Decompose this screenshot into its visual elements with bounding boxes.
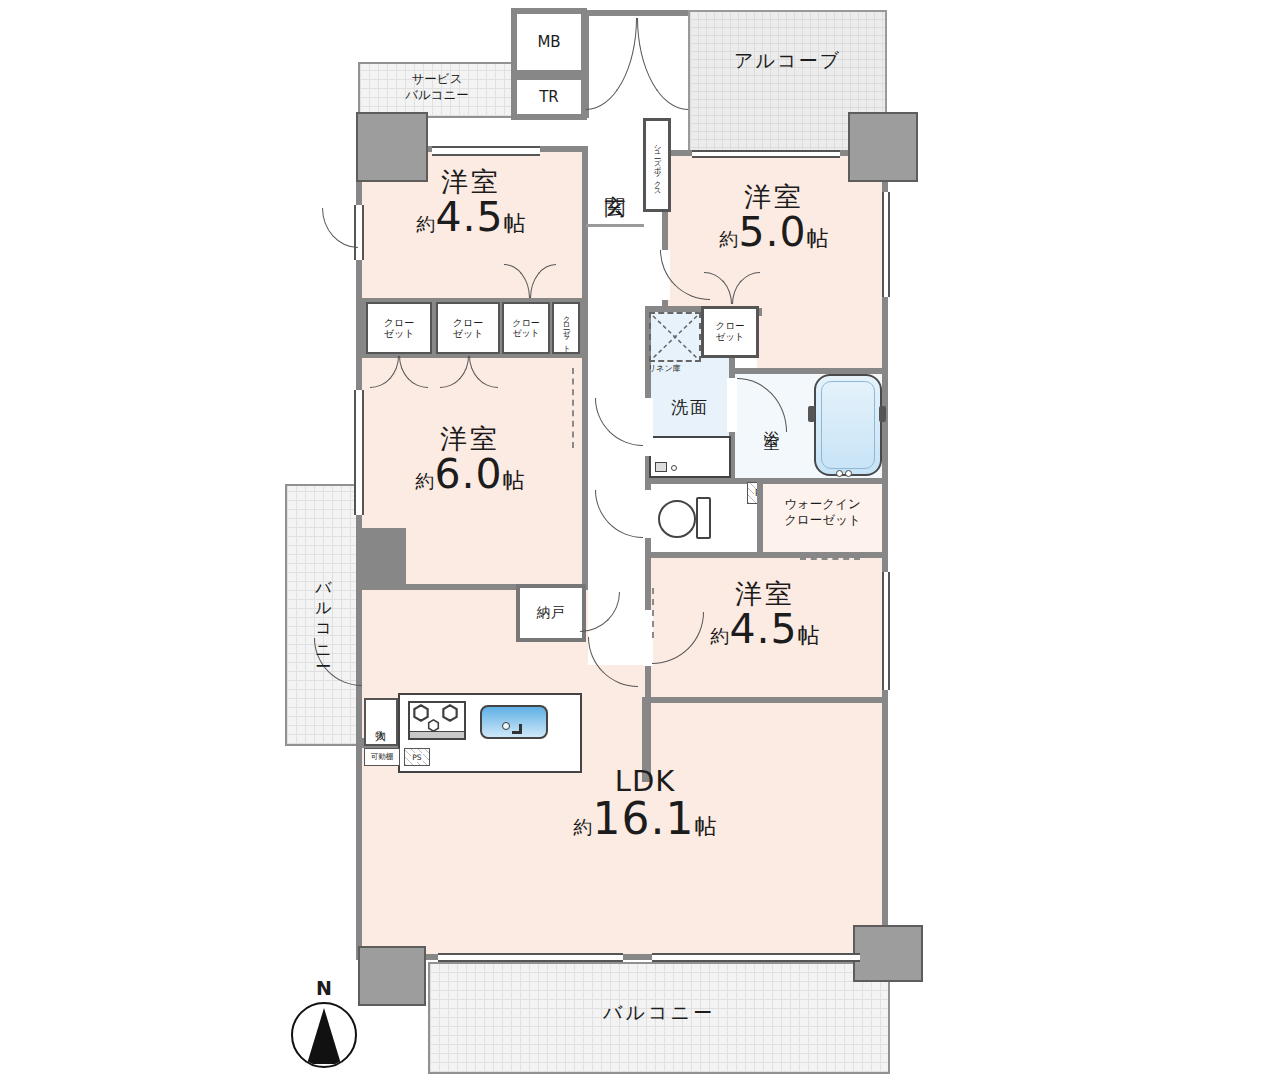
closet-label: クロー (384, 317, 414, 328)
mb-label: MB (537, 33, 560, 51)
bathtub-inner (821, 381, 875, 469)
closet-1: クローゼット (366, 302, 432, 354)
left-balcony-label: バルコニー (290, 510, 356, 720)
tr-box: TR (511, 74, 587, 120)
stove-grill (408, 731, 466, 740)
shoes-box-label: シューズボックス (652, 139, 662, 191)
room-ne-label: 洋室 約5.0帖 (668, 183, 880, 254)
window-se-right (882, 572, 890, 690)
room-west-label: 洋室 約6.0帖 (360, 425, 580, 496)
pillar-top-right (848, 112, 918, 182)
washroom-label: 洗面 (647, 392, 733, 422)
bottom-balcony-label: バルコニー (428, 998, 890, 1028)
closet-ne: クローゼット (701, 306, 759, 358)
closet-2: クローゼット (436, 302, 500, 354)
tub-drain2 (845, 470, 852, 477)
washer-space (649, 312, 701, 362)
sink-drain (502, 722, 510, 730)
mb-box: MB (511, 8, 587, 76)
sink-faucet-stem (519, 724, 522, 734)
closet-3: クローゼット (502, 302, 550, 354)
ps-label: PS (411, 753, 422, 762)
vanity-faucet (655, 462, 667, 472)
nando-label: 納戸 (537, 604, 566, 622)
washer-x-mark (651, 314, 699, 360)
tr-label: TR (539, 88, 559, 106)
closet-label: クローゼット (561, 310, 571, 347)
service-balcony-label: サービスバルコニー (360, 66, 514, 108)
dashed-line-se-top (800, 558, 860, 560)
vanity-knob (671, 465, 677, 471)
wall-ne-ext-right (882, 306, 888, 372)
toilet-tank (696, 497, 711, 539)
monoire-box: 物入 (364, 698, 398, 746)
window-ne-top (692, 150, 840, 158)
room-ldk-label: LDK 約16.1帖 (470, 766, 820, 843)
movable-shelf-box: 可動棚 (364, 748, 400, 766)
room-se-label: 洋室 約4.5帖 (650, 580, 880, 651)
window-nw-top (432, 146, 540, 156)
pillar-bottom-right (853, 925, 923, 982)
opening-washroom-door (643, 398, 653, 456)
room-ne-5-extension (757, 306, 883, 372)
closet-label: クロー (716, 320, 745, 331)
nando: 納戸 (516, 584, 586, 642)
nw-outside-door-arc (322, 208, 358, 248)
room-nw-label: 洋室 約4.5帖 (365, 168, 577, 239)
ps-box-kitchen: PS (404, 748, 430, 766)
floorplan: クローゼット クローゼット クローゼット クローゼット 玄関 シューズボックス … (0, 0, 1265, 1080)
tub-handle-right (879, 406, 886, 422)
tub-handle-left (808, 406, 815, 422)
tub-drain (836, 470, 843, 477)
compass-north-label: N (300, 976, 348, 1000)
wall-jog-west-room (356, 528, 406, 590)
genkan-label: 玄関 (588, 132, 642, 232)
wic-label: ウォークインクローゼット (759, 490, 886, 534)
bathtub (814, 374, 882, 476)
closet-4: クローゼット (552, 302, 580, 354)
window-ldk-bottom-right (652, 953, 860, 962)
alcove-label: アルコーブ (688, 46, 887, 76)
window-ldk-bottom-left (438, 953, 623, 962)
movable-shelf-label: 可動棚 (371, 752, 394, 762)
pillar-bottom-left (358, 946, 426, 1006)
compass-needle (307, 1008, 341, 1064)
closet-label: クロー (453, 317, 483, 328)
window-ne-right (882, 192, 890, 297)
opening-toilet-door (643, 490, 653, 538)
opening-bath-door (727, 378, 737, 432)
toilet-bowl (658, 500, 696, 538)
closet-label: クロー (512, 318, 539, 328)
compass-icon (291, 1002, 357, 1068)
shoes-box: シューズボックス (643, 118, 671, 212)
linen-label: リネン庫 (648, 363, 708, 375)
